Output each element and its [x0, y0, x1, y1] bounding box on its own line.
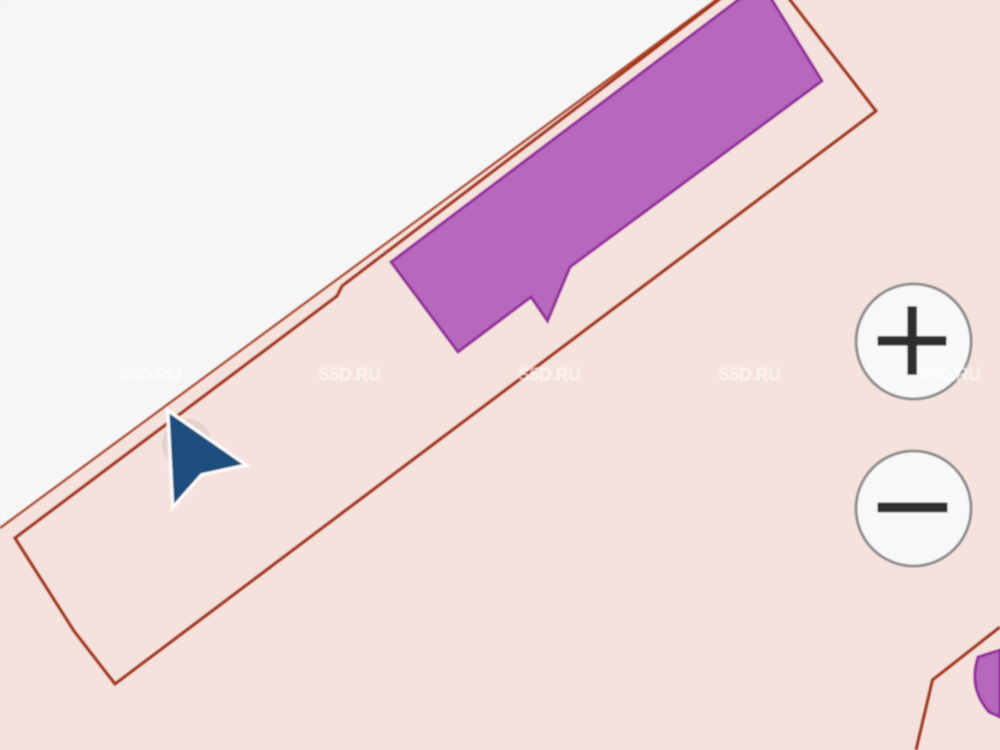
- svg-text:S5D.RU: S5D.RU: [518, 365, 581, 385]
- svg-text:S5D.RU: S5D.RU: [318, 365, 381, 385]
- svg-text:S5D.RU: S5D.RU: [918, 365, 981, 385]
- svg-text:S5D.RU: S5D.RU: [718, 365, 781, 385]
- svg-text:S5D.RU: S5D.RU: [118, 365, 181, 385]
